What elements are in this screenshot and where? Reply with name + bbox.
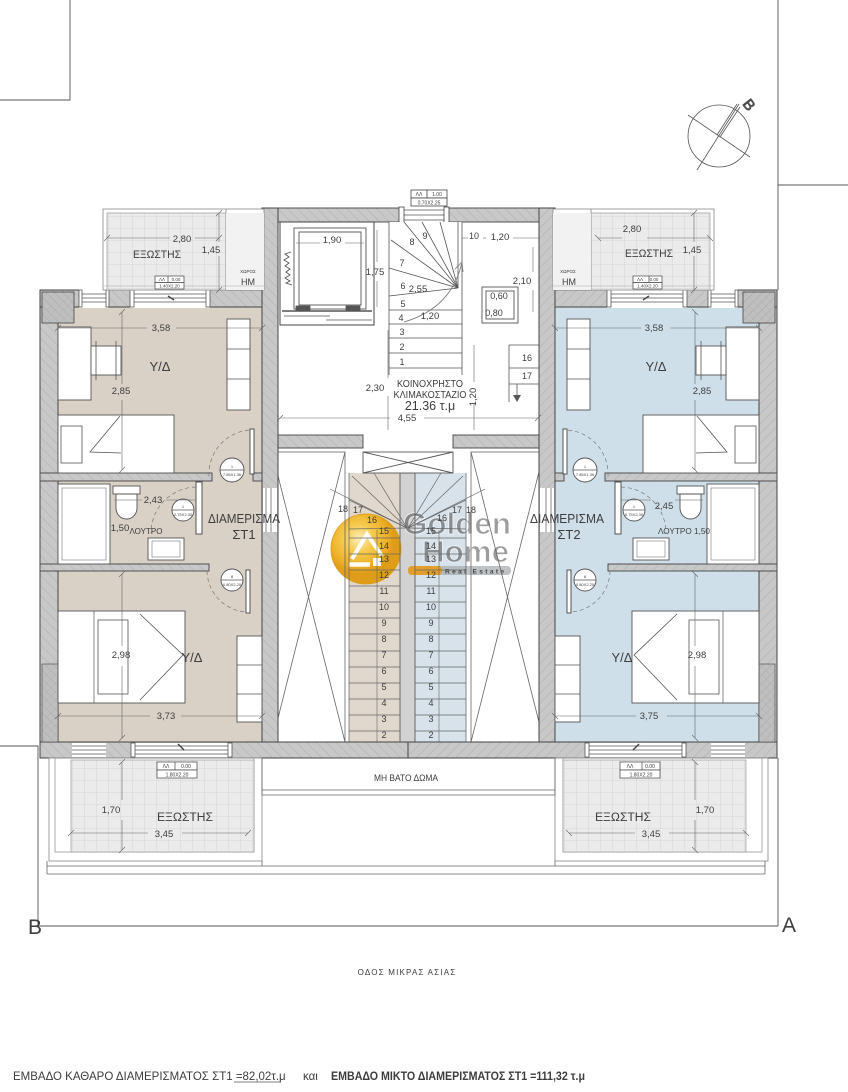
svg-text:3,45: 3,45 bbox=[642, 829, 661, 840]
svg-text:1.40Χ2.20: 1.40Χ2.20 bbox=[637, 284, 658, 289]
svg-text:5: 5 bbox=[400, 299, 405, 309]
svg-text:ΜΗ ΒΑΤΟ ΔΩΜΑ: ΜΗ ΒΑΤΟ ΔΩΜΑ bbox=[374, 773, 438, 783]
svg-text:7.85Χ1.36: 7.85Χ1.36 bbox=[223, 472, 242, 477]
svg-text:0.80Χ2.20: 0.80Χ2.20 bbox=[576, 582, 595, 587]
svg-text:17: 17 bbox=[522, 371, 532, 381]
svg-text:1,70: 1,70 bbox=[102, 805, 121, 816]
svg-text:0.70Χ2.25: 0.70Χ2.25 bbox=[418, 201, 441, 207]
svg-text:ΕΞΩΣΤΗΣ: ΕΞΩΣΤΗΣ bbox=[595, 812, 651, 824]
svg-text:ΛΛ: ΛΛ bbox=[637, 277, 643, 282]
svg-text:0.75Χ2.30: 0.75Χ2.30 bbox=[625, 512, 644, 517]
svg-text:5: 5 bbox=[381, 682, 386, 692]
svg-text:15: 15 bbox=[379, 526, 389, 536]
svg-text:16: 16 bbox=[367, 515, 377, 525]
svg-text:ΧΩΡΟΣ: ΧΩΡΟΣ bbox=[560, 269, 576, 274]
svg-text:17: 17 bbox=[353, 505, 363, 515]
svg-text:1.40Χ2.20: 1.40Χ2.20 bbox=[159, 284, 180, 289]
svg-text:8: 8 bbox=[381, 634, 386, 644]
svg-text:8: 8 bbox=[409, 237, 414, 247]
svg-text:ΣΤ2: ΣΤ2 bbox=[557, 527, 580, 542]
svg-text:1,45: 1,45 bbox=[683, 245, 702, 256]
svg-text:0.00: 0.00 bbox=[172, 277, 181, 282]
svg-text:ΔΙΑΜΕΡΙΣΜΑ: ΔΙΑΜΕΡΙΣΜΑ bbox=[208, 511, 280, 526]
svg-text:1,90: 1,90 bbox=[323, 235, 342, 246]
svg-text:0.00: 0.00 bbox=[645, 764, 655, 770]
svg-text:4,55: 4,55 bbox=[398, 413, 417, 424]
svg-text:10: 10 bbox=[469, 231, 479, 241]
svg-text:ΕΞΩΣΤΗΣ: ΕΞΩΣΤΗΣ bbox=[133, 249, 181, 261]
svg-text:2,98: 2,98 bbox=[112, 650, 131, 661]
svg-text:8: 8 bbox=[428, 634, 433, 644]
svg-text:2: 2 bbox=[399, 342, 404, 352]
svg-text:7.85Χ1.36: 7.85Χ1.36 bbox=[576, 472, 595, 477]
svg-text:0.00: 0.00 bbox=[181, 764, 191, 770]
svg-text:10: 10 bbox=[379, 602, 389, 612]
svg-text:12: 12 bbox=[426, 570, 436, 580]
svg-text:1,20: 1,20 bbox=[491, 232, 510, 243]
svg-text:2,85: 2,85 bbox=[693, 386, 712, 397]
svg-text:9: 9 bbox=[381, 618, 386, 628]
svg-text:ΕΜΒΑΔΟ ΜΙΚΤΟ ΔΙΑΜΕΡΙΣΜΑΤΟΣ ΣΤ: ΕΜΒΑΔΟ ΜΙΚΤΟ ΔΙΑΜΕΡΙΣΜΑΤΟΣ ΣΤ1 =111,32 τ… bbox=[331, 1071, 585, 1083]
svg-text:ΚΟΙΝΟΧΡΗΣΤΟ: ΚΟΙΝΟΧΡΗΣΤΟ bbox=[397, 379, 463, 390]
svg-text:1: 1 bbox=[399, 357, 404, 367]
svg-text:ΗΜ: ΗΜ bbox=[241, 277, 255, 287]
svg-text:Y/Δ: Y/Δ bbox=[646, 359, 667, 374]
svg-text:2,10: 2,10 bbox=[513, 276, 532, 287]
svg-text:17: 17 bbox=[452, 505, 462, 515]
svg-text:1,75: 1,75 bbox=[366, 267, 385, 278]
svg-text:5: 5 bbox=[428, 682, 433, 692]
svg-text:ΗΜ: ΗΜ bbox=[562, 277, 576, 287]
svg-text:3,75: 3,75 bbox=[640, 711, 659, 722]
svg-text:ΣΤ1: ΣΤ1 bbox=[232, 527, 255, 542]
svg-text:Real Estate: Real Estate bbox=[445, 569, 506, 576]
svg-text:3,58: 3,58 bbox=[645, 323, 664, 334]
svg-text:1,50: 1,50 bbox=[111, 523, 130, 534]
svg-text:3: 3 bbox=[381, 714, 386, 724]
svg-text:0.00: 0.00 bbox=[650, 277, 659, 282]
svg-text:12: 12 bbox=[379, 570, 389, 580]
svg-text:21.36 τ.μ: 21.36 τ.μ bbox=[405, 399, 455, 413]
svg-text:11: 11 bbox=[426, 586, 435, 596]
svg-text:1,20: 1,20 bbox=[421, 311, 440, 322]
svg-text:0,80: 0,80 bbox=[485, 308, 503, 318]
svg-text:Y/Δ: Y/Δ bbox=[182, 650, 203, 665]
svg-text:4: 4 bbox=[381, 698, 386, 708]
svg-text:18: 18 bbox=[338, 504, 348, 514]
svg-text:ΛΟΥΤΡΟ 1,50: ΛΟΥΤΡΟ 1,50 bbox=[658, 526, 710, 536]
svg-text:2,45: 2,45 bbox=[655, 501, 674, 512]
svg-text:7: 7 bbox=[399, 258, 404, 268]
svg-text:1.80Χ2.20: 1.80Χ2.20 bbox=[630, 773, 653, 779]
svg-text:ΛΛ: ΛΛ bbox=[627, 764, 634, 770]
svg-text:14: 14 bbox=[426, 541, 436, 551]
svg-text:2: 2 bbox=[381, 730, 386, 740]
svg-text:2,85: 2,85 bbox=[112, 386, 131, 397]
svg-text:6: 6 bbox=[428, 666, 433, 676]
svg-text:2,30: 2,30 bbox=[366, 383, 385, 394]
svg-text:ΛΛ: ΛΛ bbox=[416, 192, 423, 198]
svg-text:2,43: 2,43 bbox=[144, 495, 163, 506]
svg-text:0.80Χ2.20: 0.80Χ2.20 bbox=[223, 582, 242, 587]
svg-text:2: 2 bbox=[428, 730, 433, 740]
svg-text:1.80Χ2.20: 1.80Χ2.20 bbox=[166, 773, 189, 779]
svg-text:3,58: 3,58 bbox=[152, 323, 171, 334]
svg-text:B: B bbox=[28, 916, 42, 939]
svg-text:1,70: 1,70 bbox=[696, 805, 715, 816]
svg-text:1,20: 1,20 bbox=[468, 388, 479, 407]
svg-text:16: 16 bbox=[437, 513, 447, 523]
svg-text:13: 13 bbox=[426, 554, 436, 564]
svg-text:15: 15 bbox=[426, 526, 436, 536]
svg-text:6: 6 bbox=[400, 281, 405, 291]
svg-text:ΕΜΒΑΔΟ ΚΑΘΑΡΟ ΔΙΑΜΕΡΙΣΜΑΤΟΣ ΣΤ: ΕΜΒΑΔΟ ΚΑΘΑΡΟ ΔΙΑΜΕΡΙΣΜΑΤΟΣ ΣΤ1 =82,02τ.… bbox=[13, 1071, 286, 1083]
svg-text:13: 13 bbox=[379, 554, 389, 564]
svg-text:6: 6 bbox=[381, 666, 386, 676]
svg-text:ΔΙΑΜΕΡΙΣΜΑ: ΔΙΑΜΕΡΙΣΜΑ bbox=[530, 511, 604, 526]
svg-text:3: 3 bbox=[399, 327, 404, 337]
svg-text:9: 9 bbox=[428, 618, 433, 628]
svg-text:2,80: 2,80 bbox=[623, 224, 642, 235]
svg-text:7: 7 bbox=[381, 650, 386, 660]
svg-text:14: 14 bbox=[379, 541, 389, 551]
svg-text:ΛΛ: ΛΛ bbox=[163, 764, 170, 770]
svg-text:ΛΛ: ΛΛ bbox=[159, 277, 165, 282]
svg-text:ΕΞΩΣΤΗΣ: ΕΞΩΣΤΗΣ bbox=[625, 248, 673, 260]
svg-text:4: 4 bbox=[398, 313, 403, 323]
svg-text:4: 4 bbox=[428, 698, 433, 708]
svg-text:2,80: 2,80 bbox=[173, 234, 192, 245]
svg-text:3: 3 bbox=[428, 714, 433, 724]
svg-text:ΟΔΟΣ ΜΙΚΡΑΣ ΑΣΙΑΣ: ΟΔΟΣ ΜΙΚΡΑΣ ΑΣΙΑΣ bbox=[358, 968, 457, 977]
svg-text:16: 16 bbox=[522, 353, 532, 363]
svg-text:2.75Χ2.30: 2.75Χ2.30 bbox=[174, 512, 193, 517]
svg-text:A: A bbox=[782, 914, 796, 937]
svg-text:ΛΟΥΤΡΟ: ΛΟΥΤΡΟ bbox=[130, 526, 163, 536]
svg-text:10: 10 bbox=[426, 602, 436, 612]
svg-text:2,55: 2,55 bbox=[409, 284, 428, 295]
svg-text:3,73: 3,73 bbox=[157, 711, 176, 722]
svg-text:1.00: 1.00 bbox=[432, 192, 442, 198]
svg-text:και: και bbox=[303, 1071, 318, 1083]
svg-text:9: 9 bbox=[422, 231, 427, 241]
svg-text:1,45: 1,45 bbox=[202, 245, 221, 256]
svg-text:ΕΞΩΣΤΗΣ: ΕΞΩΣΤΗΣ bbox=[157, 812, 213, 824]
svg-text:11: 11 bbox=[379, 586, 388, 596]
svg-text:Y/Δ: Y/Δ bbox=[612, 650, 633, 665]
svg-text:0,60: 0,60 bbox=[490, 291, 508, 301]
svg-text:18: 18 bbox=[466, 505, 476, 515]
svg-text:Y/Δ: Y/Δ bbox=[150, 359, 171, 374]
svg-text:2,98: 2,98 bbox=[688, 650, 707, 661]
svg-text:7: 7 bbox=[428, 650, 433, 660]
svg-text:3,45: 3,45 bbox=[155, 829, 174, 840]
svg-text:ΧΩΡΟΣ: ΧΩΡΟΣ bbox=[240, 269, 256, 274]
